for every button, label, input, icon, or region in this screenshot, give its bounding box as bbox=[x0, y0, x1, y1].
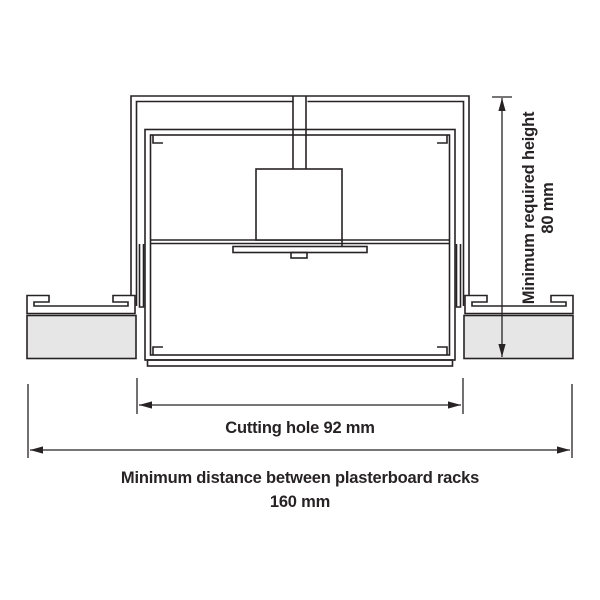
cutting-hole-dimension: Cutting hole 92 mm bbox=[137, 378, 463, 437]
fixture-body bbox=[140, 130, 461, 367]
bottom-trim-flange bbox=[148, 360, 453, 366]
right-spring-clip bbox=[457, 244, 461, 307]
left-rack-profile bbox=[27, 296, 135, 314]
height-label-line1: Minimum required height bbox=[520, 111, 538, 304]
rack-distance-dimension: Minimum distance between plasterboard ra… bbox=[28, 384, 572, 511]
mounting-plate bbox=[233, 247, 367, 253]
right-rack-profile bbox=[465, 296, 573, 314]
diagram-canvas: Minimum required height 80 mm Cutting ho… bbox=[0, 0, 600, 600]
plasterboard-racks bbox=[27, 296, 573, 359]
cutting-arrow-left bbox=[139, 401, 152, 408]
body-outer-wall bbox=[145, 130, 455, 361]
rack-distance-label-line1: Minimum distance between plasterboard ra… bbox=[121, 469, 479, 487]
distance-arrow-left bbox=[30, 446, 43, 453]
driver-box bbox=[256, 169, 342, 240]
body-inner-wall bbox=[151, 135, 450, 355]
left-plasterboard bbox=[27, 316, 136, 359]
installation-diagram: Minimum required height 80 mm Cutting ho… bbox=[0, 0, 600, 600]
cutting-arrow-right bbox=[448, 401, 461, 408]
mounting-tab bbox=[291, 253, 307, 259]
cutting-hole-label: Cutting hole 92 mm bbox=[225, 419, 375, 437]
height-label-line2: 80 mm bbox=[539, 182, 557, 233]
height-arrow-up bbox=[498, 98, 505, 111]
right-plasterboard bbox=[464, 316, 573, 359]
suspension-stem bbox=[293, 96, 306, 169]
left-spring-clip bbox=[140, 244, 144, 307]
rack-distance-label-line2: 160 mm bbox=[270, 493, 330, 511]
distance-arrow-right bbox=[557, 446, 570, 453]
